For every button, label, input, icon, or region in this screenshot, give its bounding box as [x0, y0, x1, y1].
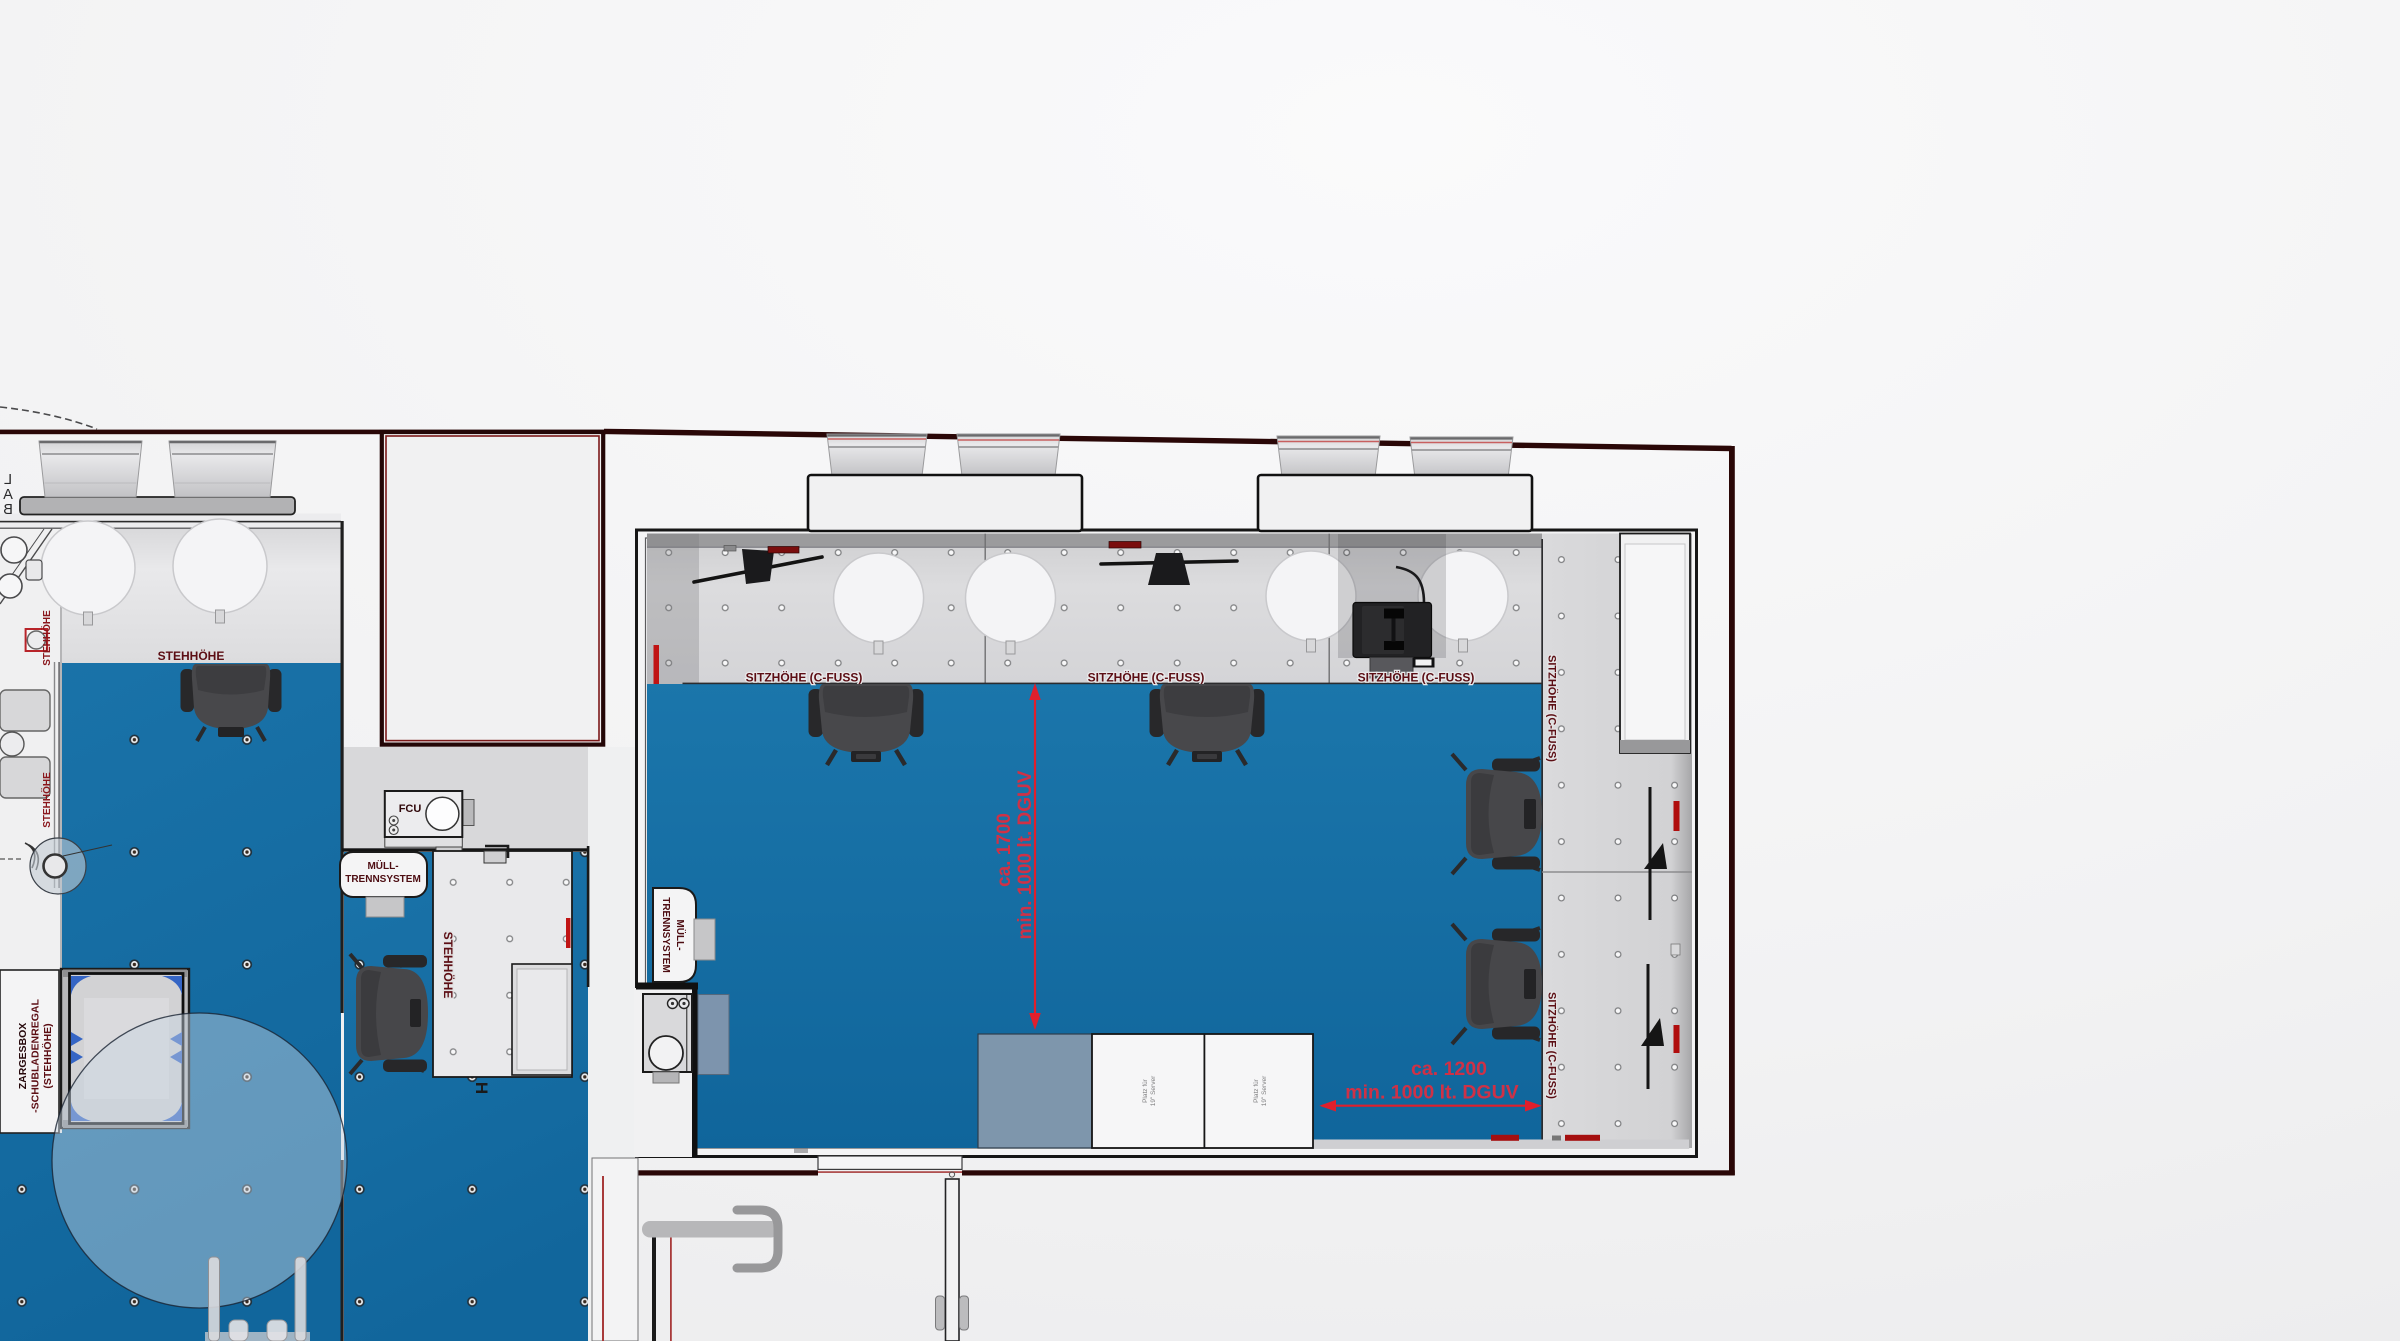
svg-text:A: A: [3, 487, 13, 503]
svg-text:STEHHÖHE: STEHHÖHE: [158, 648, 225, 663]
svg-text:SITZHÖHE (C-FUSS): SITZHÖHE (C-FUSS): [1088, 670, 1205, 685]
svg-text:MÜLL-: MÜLL-: [367, 859, 398, 872]
svg-text:TRENNSYSTEM: TRENNSYSTEM: [345, 874, 421, 885]
svg-text:Platz für: Platz für: [1142, 1078, 1149, 1103]
svg-text:STEHHÖHE: STEHHÖHE: [40, 610, 53, 666]
svg-text:L: L: [4, 472, 12, 488]
svg-text:19" Server: 19" Server: [1261, 1075, 1268, 1106]
svg-text:STEHHÖHE: STEHHÖHE: [441, 932, 456, 999]
svg-text:STEHHÖHE: STEHHÖHE: [40, 772, 53, 828]
svg-text:TRENNSYSTEM: TRENNSYSTEM: [660, 897, 671, 973]
svg-text:SITZHÖHE (C-FUSS): SITZHÖHE (C-FUSS): [1358, 670, 1475, 685]
svg-text:FCU: FCU: [399, 803, 422, 815]
svg-text:B: B: [3, 502, 13, 518]
svg-text:19" Server: 19" Server: [1150, 1075, 1157, 1106]
svg-text:H: H: [472, 1082, 491, 1094]
svg-text:ca. 1200: ca. 1200: [1411, 1058, 1487, 1080]
svg-text:ZARGESBOX: ZARGESBOX: [17, 1023, 29, 1090]
svg-text:Platz für: Platz für: [1253, 1078, 1260, 1103]
svg-text:SITZHÖHE (C-FUSS): SITZHÖHE (C-FUSS): [746, 670, 863, 685]
svg-text:(STEHHÖHE): (STEHHÖHE): [41, 1023, 54, 1088]
svg-text:SITZHÖHE (C-FUSS): SITZHÖHE (C-FUSS): [1546, 992, 1559, 1099]
svg-text:min. 1000 lt. DGUV: min. 1000 lt. DGUV: [1345, 1082, 1518, 1104]
svg-text:SITZHÖHE (C-FUSS): SITZHÖHE (C-FUSS): [1546, 655, 1559, 762]
svg-text:-SCHUBLADENREGAL: -SCHUBLADENREGAL: [30, 999, 42, 1113]
svg-text:MÜLL-: MÜLL-: [674, 919, 687, 950]
svg-text:ca. 1700: ca. 1700: [994, 813, 1015, 887]
svg-text:min. 1000 lt. DGUV: min. 1000 lt. DGUV: [1015, 770, 1036, 939]
